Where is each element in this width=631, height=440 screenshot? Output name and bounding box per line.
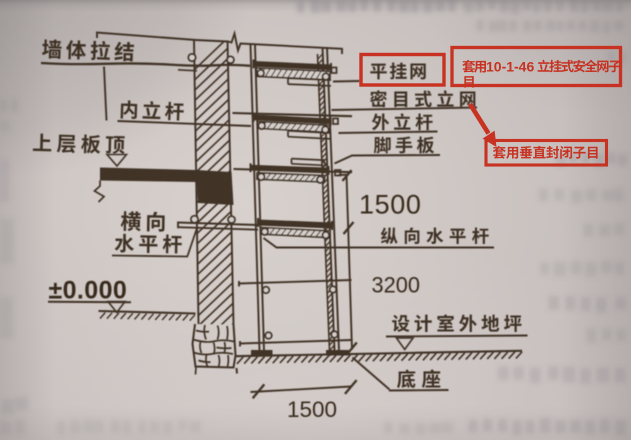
svg-text:1500: 1500	[287, 397, 337, 422]
svg-text:1500: 1500	[359, 190, 421, 220]
svg-text:10-1-46: 10-1-46	[486, 59, 534, 75]
svg-text:3200: 3200	[372, 273, 421, 298]
svg-text:±0.000: ±0.000	[49, 277, 128, 305]
